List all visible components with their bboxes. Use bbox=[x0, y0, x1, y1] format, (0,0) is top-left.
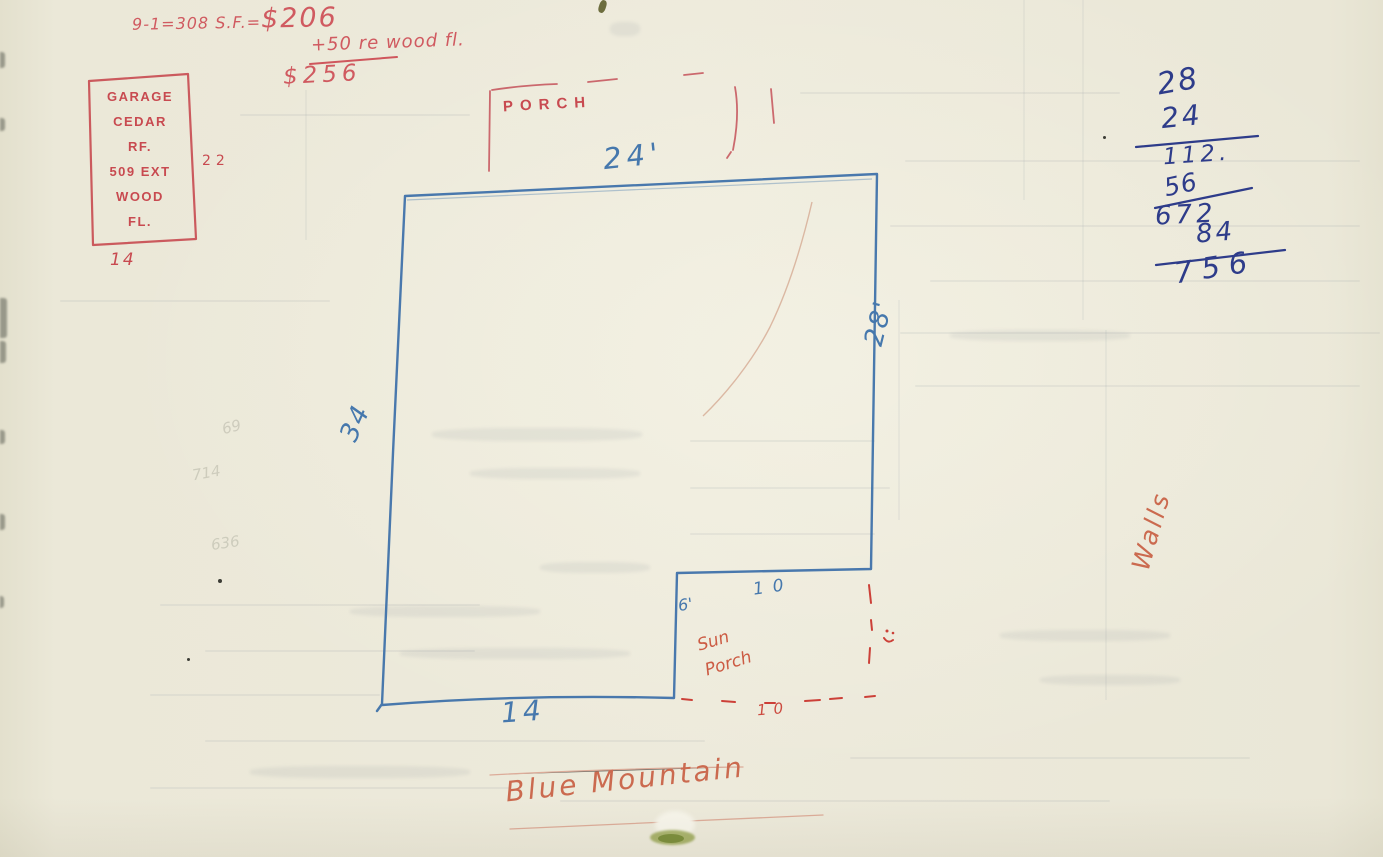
formula-value: $206 bbox=[261, 2, 338, 34]
garage-note-line: RF. bbox=[88, 134, 192, 159]
garage-depth-dimension: 14 bbox=[110, 250, 136, 270]
notch-height-dimension-6ft: 6' bbox=[677, 594, 694, 615]
garage-note-line: 509 EXT bbox=[88, 159, 192, 184]
green-stain bbox=[658, 834, 684, 843]
scanned-appraisal-sketch-sheet: 9-1=308 S.F.=$206 +50 re wood fl. $256 G… bbox=[0, 0, 1383, 857]
wall-calc-row: 84 bbox=[1195, 216, 1237, 249]
garage-note-line: FL. bbox=[88, 209, 192, 234]
garage-note-line: WOOD bbox=[88, 184, 192, 209]
building-outline-second-pass bbox=[407, 179, 872, 200]
garage-note-line: CEDAR bbox=[88, 109, 192, 134]
garage-note: GARAGE CEDAR RF. 509 EXT WOOD FL. bbox=[88, 84, 192, 234]
building-outline bbox=[377, 174, 877, 711]
area-formula-line: 9-1=308 S.F.=$206 bbox=[132, 2, 338, 37]
formula-prefix: 9-1=308 S.F.= bbox=[132, 13, 261, 34]
bottom-dimension-14ft: 14 bbox=[500, 694, 546, 730]
formula-total: $256 bbox=[282, 60, 362, 90]
wall-calc-row: 28 bbox=[1154, 61, 1202, 103]
sun-porch-bottom-dimension-10ft: 10 bbox=[756, 699, 791, 720]
stray-pencil-curve bbox=[703, 202, 812, 416]
garage-width-dimension: 22 bbox=[202, 153, 230, 169]
wall-calc-row: 24 bbox=[1159, 98, 1204, 135]
wall-calc-row: 112. bbox=[1162, 140, 1231, 171]
garage-note-line: GARAGE bbox=[88, 84, 192, 109]
top-dimension-24ft: 24' bbox=[601, 136, 664, 176]
